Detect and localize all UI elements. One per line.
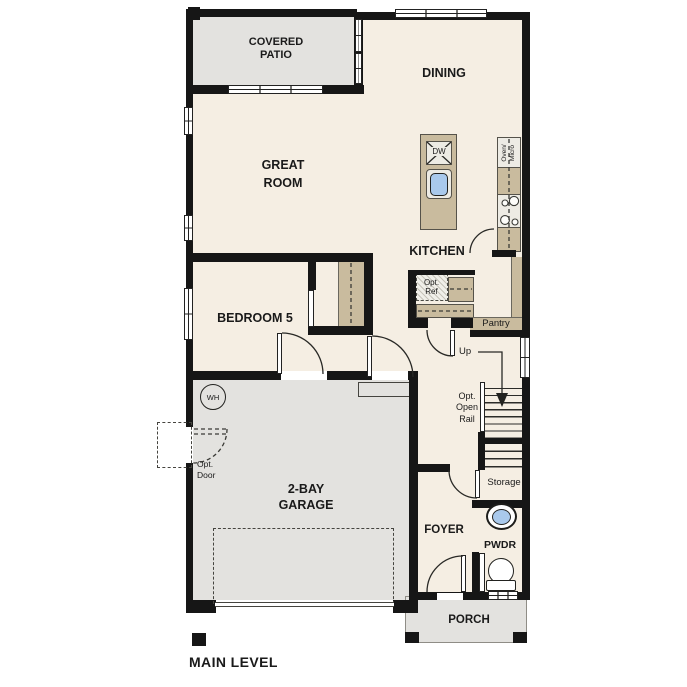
kitchen-label: KITCHEN	[403, 244, 471, 259]
mud-hall-door-swing-arc	[427, 330, 453, 356]
great-room-label: GREATROOM	[233, 157, 333, 192]
front-door-swing-arc	[427, 556, 463, 592]
bedroom5-label: BEDROOM 5	[205, 311, 305, 326]
dining-label: DINING	[404, 66, 484, 81]
floor-plan: Oven/ Micro Opt. Ref	[0, 0, 687, 687]
storage-label: Storage	[483, 477, 525, 488]
window-powder-mullions	[498, 592, 508, 599]
burner-bottom-right	[512, 219, 518, 225]
plan-annotations	[0, 0, 687, 687]
burner-top-right	[509, 196, 518, 205]
dishwasher-label: DW	[426, 147, 452, 157]
stairs-up-arrow-line	[478, 352, 502, 393]
burner-bottom-left	[501, 216, 510, 225]
up-label: Up	[459, 346, 471, 357]
garage-label: 2-BAYGARAGE	[256, 482, 356, 513]
burner-top-left	[502, 200, 508, 206]
stairs-up-arrowhead	[496, 393, 508, 407]
garage-entry-door-swing-arc	[372, 336, 413, 377]
opt-open-rail-label: Opt.OpenRail	[450, 391, 484, 425]
pantry-door-swing-arc	[470, 229, 494, 253]
optional-door-header-lines	[194, 429, 228, 434]
window-dining-mullions	[426, 10, 457, 17]
bedroom5-door-swing-arc	[282, 333, 323, 374]
window-patio-mullions	[260, 86, 291, 93]
storage-door-swing-arc	[449, 470, 477, 498]
covered-patio-label: COVEREDPATIO	[226, 36, 326, 62]
foyer-label: FOYER	[419, 524, 469, 537]
pantry-label: Pantry	[470, 318, 522, 329]
porch-label: PORCH	[438, 614, 500, 627]
powder-label: PWDR	[480, 539, 520, 551]
opt-door-label: Opt.Door	[197, 459, 215, 481]
plan-title: MAIN LEVEL	[189, 654, 278, 670]
